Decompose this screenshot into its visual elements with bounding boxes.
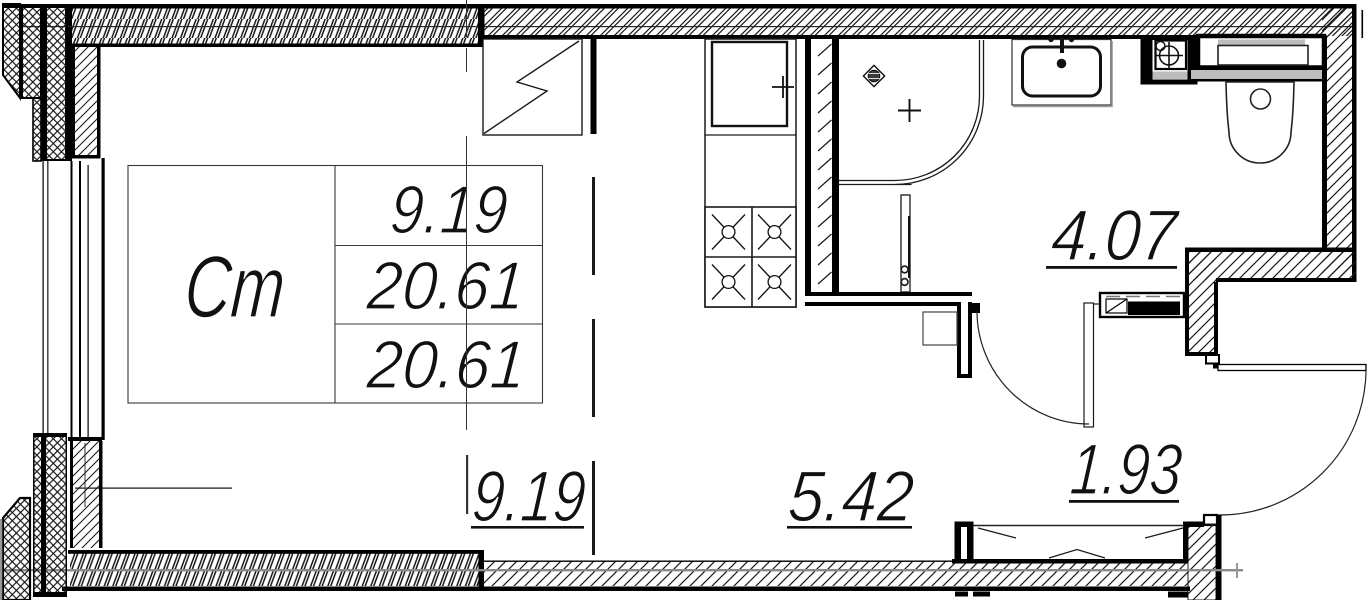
svg-text:20.61: 20.61 [364,327,528,403]
svg-text:5.42: 5.42 [786,457,917,537]
svg-text:1.93: 1.93 [1068,430,1185,510]
svg-text:4.07: 4.07 [1049,196,1182,276]
svg-text:Cm: Cm [182,237,289,336]
svg-text:9.19: 9.19 [470,457,589,537]
svg-text:9.19: 9.19 [388,172,510,248]
svg-text:20.61: 20.61 [364,248,527,324]
